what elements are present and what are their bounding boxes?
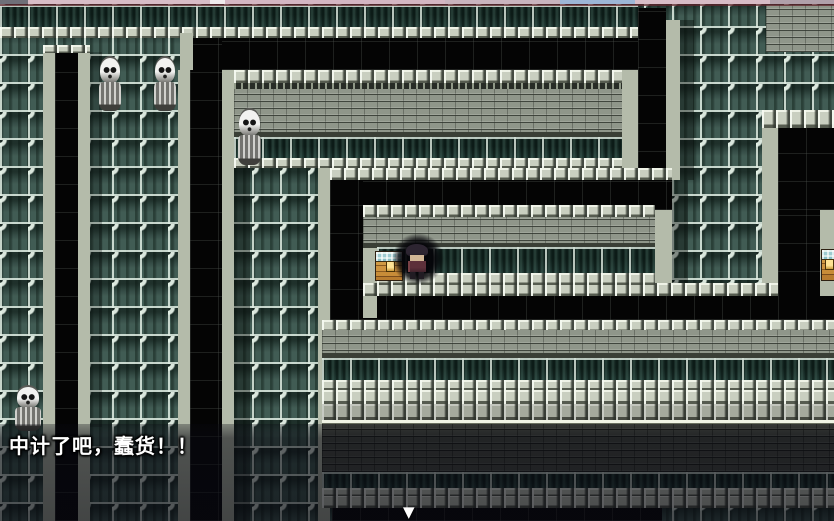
stone-brick-wall (234, 83, 622, 137)
corridor-top-horizontal (193, 38, 666, 70)
stone-brick-wall (766, 5, 834, 52)
cap-row (762, 110, 834, 128)
window-top-edge-line (0, 4, 834, 6)
game-canvas[interactable]: 中计了吧，蠢货！！ ▼ (0, 0, 834, 521)
cap-row (234, 70, 622, 83)
hero-body (408, 261, 426, 272)
treasure-chest-clipped[interactable] (821, 249, 834, 281)
wall-shadow (680, 20, 694, 180)
hero-legs (410, 272, 424, 279)
dialogue-continue-arrow-icon: ▼ (403, 503, 415, 521)
skull-head (100, 58, 120, 83)
corridor-vertical-center (638, 8, 666, 180)
wall-border-column (762, 110, 778, 296)
wall-border-column (622, 70, 638, 180)
cap-row (330, 168, 672, 180)
skull-torso (238, 135, 262, 165)
skull-head (239, 110, 260, 136)
corridor-right-upper (778, 128, 834, 210)
cap-row (363, 205, 655, 217)
skull-statue (97, 56, 123, 111)
cap-row (322, 404, 834, 420)
skull-head (17, 387, 40, 408)
corridor-lower-horizontal (330, 296, 834, 320)
skull-torso (99, 82, 122, 111)
wall-border-column (666, 20, 680, 180)
wall-border-cap (43, 45, 90, 53)
skull-torso (154, 82, 177, 111)
wall-border-column (180, 33, 193, 70)
corridor-right-vertical (778, 210, 820, 300)
skull-statue (152, 56, 178, 111)
player-character[interactable] (405, 244, 429, 279)
fence-row-top (0, 5, 638, 38)
fence-row (322, 358, 834, 390)
stone-brick-wall (322, 330, 834, 358)
skull-statue (236, 108, 263, 165)
fence-row (234, 137, 622, 168)
skull-head (155, 58, 175, 83)
cap-row (322, 390, 834, 404)
wall-shadow (672, 180, 688, 296)
dialogue-text: 中计了吧，蠢货！！ (9, 430, 198, 459)
